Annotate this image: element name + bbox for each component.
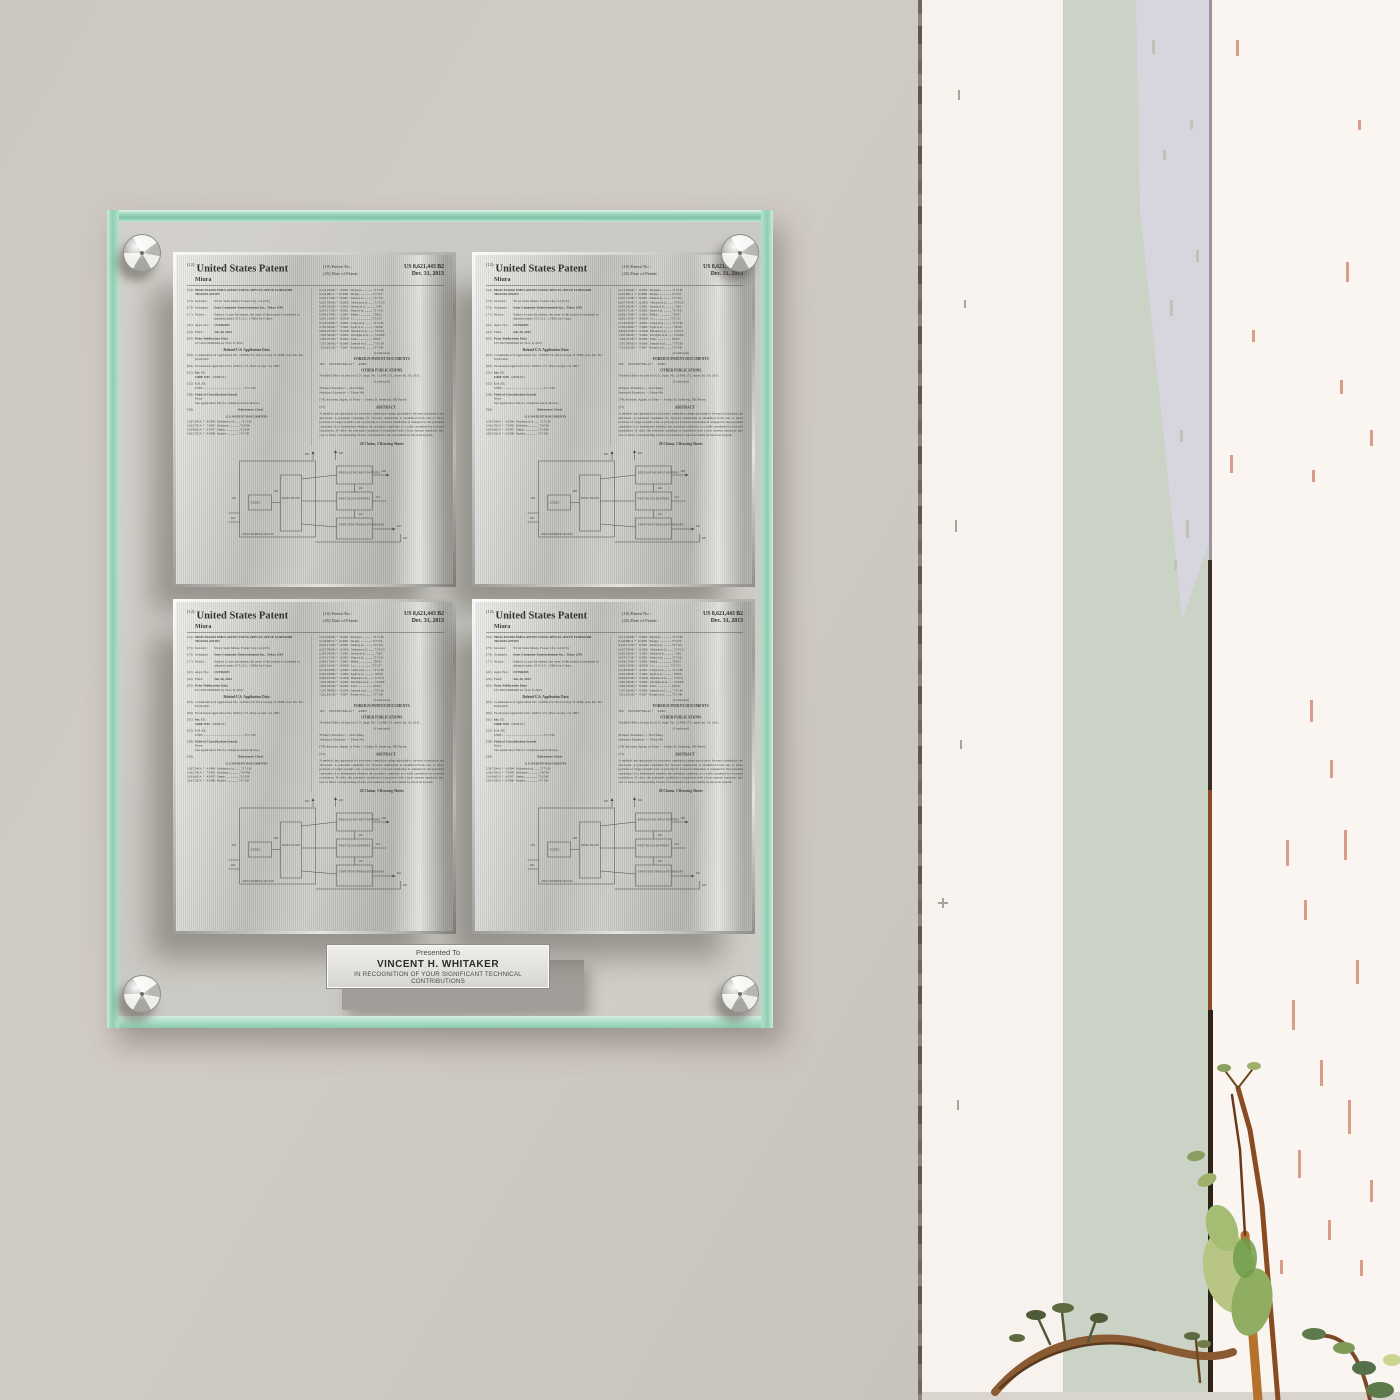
svg-text:106: 106 [274, 489, 279, 493]
filed-date: Jul. 26, 2012 [513, 677, 605, 681]
related-60: Provisional application No. 60/911,171, … [494, 711, 605, 715]
svg-text:BASIC BLOCK: BASIC BLOCK [581, 843, 600, 847]
foreign-ref: WO WO 03/027842 A2 * 4/2003 [320, 710, 445, 714]
svg-text:106: 106 [573, 836, 578, 840]
uspc-line: USPC ...................................… [494, 733, 554, 737]
related-63: Continuation of application No. 12/099,1… [195, 701, 306, 709]
application-number: 13/558,003 [214, 324, 306, 328]
primary-examiner: Primary Examiner — Don Wong [320, 386, 445, 390]
attorney-line: (74) Attorney, Agent, or Firm — Joshua D… [320, 745, 445, 749]
notice: Subject to any disclaimer, the term of t… [214, 313, 306, 321]
assignee: Sony Computer Entertainment Inc., Tokyo … [513, 306, 605, 310]
svg-text:FIRST BLOCK BUFFERS: FIRST BLOCK BUFFERS [638, 496, 670, 500]
svg-text:110: 110 [658, 833, 663, 837]
us-refs-right: 6,115,054 B1 * 9/2000 Maynard ..........… [619, 636, 744, 698]
svg-text:START ROW TRANSLATE MEMORY: START ROW TRANSLATE MEMORY [638, 869, 684, 873]
assignee: Sony Computer Entertainment Inc., Tokyo … [214, 653, 306, 657]
notice: Subject to any disclaimer, the term of t… [214, 660, 306, 668]
assistant-examiner: Assistant Examiner — Theon Wu [619, 738, 744, 742]
patent-figure: 100 102 CODEC BASIC BLOCK 104 106 118 SP… [486, 796, 743, 897]
window-and-plant-art [900, 0, 1400, 1400]
recognition-line: IN RECOGNITION OF YOUR SIGNIFICANT TECHN… [327, 971, 549, 985]
svg-text:102: 102 [339, 451, 344, 455]
svg-text:SPECULATIVE INPUT BUFFERS: SPECULATIVE INPUT BUFFERS [339, 470, 380, 474]
header-rule [486, 632, 743, 633]
patent-number: US 8,621,443 B2 [404, 263, 444, 270]
continued-note: (Continued) [619, 352, 744, 356]
svg-text:116: 116 [397, 524, 402, 528]
svg-text:CODEC: CODEC [251, 500, 261, 504]
inventor-surname: Miura [494, 623, 587, 631]
field-of-search-label: Field of Classification Search [195, 393, 237, 397]
svg-text:116: 116 [696, 524, 701, 528]
patent-title-heading: United States Patent [496, 262, 588, 274]
header-rule [187, 285, 444, 286]
continued-note: (Continued) [320, 699, 445, 703]
svg-text:110: 110 [359, 833, 364, 837]
us-refs-left: 5,307,504 A * 4/1994 Robinson et al. ...… [187, 420, 306, 436]
application-number: 13/558,003 [214, 671, 306, 675]
related-60: Provisional application No. 60/911,171, … [195, 711, 306, 715]
date-of-patent-label: (45) Date of Patent: [622, 617, 658, 624]
related-63: Continuation of application No. 12/099,1… [494, 354, 605, 362]
abstract-heading: ABSTRACT [627, 752, 744, 756]
field-of-search-label: Field of Classification Search [195, 740, 237, 744]
patent-plate-face: (12)United States Patent Miura (10) Pate… [475, 255, 752, 584]
inventor-surname: Miura [494, 276, 587, 284]
date-of-patent-label: (45) Date of Patent: [323, 617, 359, 624]
patent-no-label: (10) Patent No.: [622, 610, 651, 617]
svg-text:MAIN INTERNAL BLOCK: MAIN INTERNAL BLOCK [243, 532, 274, 536]
kind-code: (12) [486, 609, 494, 614]
patent-figure: 100 102 CODEC BASIC BLOCK 104 106 118 SP… [187, 449, 444, 550]
svg-text:100: 100 [604, 452, 609, 456]
application-number: 13/558,003 [513, 324, 605, 328]
svg-text:100: 100 [305, 799, 310, 803]
photo-scene: (12)United States Patent Miura (10) Pate… [0, 0, 1400, 1400]
svg-text:MAIN INTERNAL BLOCK: MAIN INTERNAL BLOCK [542, 532, 573, 536]
ref-line: 7,251,811 B2 * 7/2007 Rosner et al. ....… [320, 693, 445, 697]
claims-line: 20 Claims, 3 Drawing Sheets [619, 442, 744, 446]
ref-line: 5,815,720 A * 9/1998 Buzbee ............… [486, 779, 605, 783]
claims-line: 20 Claims, 3 Drawing Sheets [320, 442, 445, 446]
foreign-ref: WO WO 03/027842 A2 * 4/2003 [619, 363, 744, 367]
other-publications-text: Notified Office Action for U.S. Appl. No… [320, 374, 445, 378]
abstract-text: A method and apparatus for processor emu… [320, 759, 445, 785]
int-cl-code: G06F 9/45 [494, 722, 509, 726]
kind-code: (12) [187, 262, 195, 267]
related-60: Provisional application No. 60/911,171, … [494, 364, 605, 368]
patent-right-column: 6,115,054 B1 * 9/2000 Maynard ..........… [619, 636, 744, 793]
int-cl-code: G06F 9/45 [195, 722, 210, 726]
filed-date: Jul. 26, 2012 [214, 677, 306, 681]
patent-right-column: 6,115,054 B1 * 9/2000 Maynard ..........… [320, 289, 445, 446]
standoff-screw-top-right [721, 234, 759, 272]
patent-title-heading: United States Patent [496, 609, 588, 621]
ref-line: 5,815,720 A * 9/1998 Buzbee ............… [486, 432, 605, 436]
related-63: Continuation of application No. 12/099,1… [494, 701, 605, 709]
us-patent-documents-heading: U.S. PATENT DOCUMENTS [486, 762, 605, 766]
filed-date: Jul. 26, 2012 [214, 330, 306, 334]
us-refs-left: 5,307,504 A * 4/1994 Robinson et al. ...… [486, 420, 605, 436]
claims-line: 20 Claims, 3 Drawing Sheets [320, 789, 445, 793]
svg-text:START ROW TRANSLATE MEMORY: START ROW TRANSLATE MEMORY [638, 522, 684, 526]
glass-edge-left [107, 210, 119, 1028]
svg-text:SPECULATIVE INPUT BUFFERS: SPECULATIVE INPUT BUFFERS [638, 470, 679, 474]
svg-text:116: 116 [696, 871, 701, 875]
other-publications-heading: OTHER PUBLICATIONS [320, 716, 445, 720]
assignee: Sony Computer Entertainment Inc., Tokyo … [214, 306, 306, 310]
standoff-screw-bottom-right [721, 975, 759, 1013]
svg-text:108: 108 [382, 816, 387, 820]
svg-text:106: 106 [573, 489, 578, 493]
primary-examiner: Primary Examiner — Don Wong [619, 733, 744, 737]
presented-to-label: Presented To [327, 948, 549, 957]
patent-plate-face: (12)United States Patent Miura (10) Pate… [176, 255, 453, 584]
svg-text:FIRST BLOCK BUFFERS: FIRST BLOCK BUFFERS [638, 843, 670, 847]
assistant-examiner: Assistant Examiner — Theon Wu [619, 391, 744, 395]
nameplate: Presented To VINCENT H. WHITAKER IN RECO… [326, 944, 550, 989]
svg-text:114: 114 [376, 495, 381, 499]
patent-left-column: (54)PROCESSOR EMULATION USING SPECULATIV… [187, 289, 312, 446]
continued-note-2: (Continued) [320, 727, 445, 731]
uspc-line: USPC ...................................… [494, 386, 554, 390]
assignee: Sony Computer Entertainment Inc., Tokyo … [513, 653, 605, 657]
date-of-patent-label: (45) Date of Patent: [323, 270, 359, 277]
assistant-examiner: Assistant Examiner — Theon Wu [320, 391, 445, 395]
prior-publication-line: US 2012/0296626 A1 Nov. 8, 2012 [494, 688, 542, 692]
int-cl-code: G06F 9/45 [494, 375, 509, 379]
patent-no-label: (10) Patent No.: [323, 610, 352, 617]
inventor-surname: Miura [195, 623, 288, 631]
plant [995, 1062, 1400, 1400]
related-60: Provisional application No. 60/911,171, … [195, 364, 306, 368]
prior-publication-heading: Prior Publication Data [195, 684, 228, 688]
foreign-docs-heading: FOREIGN PATENT DOCUMENTS [619, 704, 744, 708]
svg-text:120: 120 [403, 536, 408, 540]
us-refs-left: 5,307,504 A * 4/1994 Robinson et al. ...… [486, 767, 605, 783]
patent-header: (12)United States Patent Miura (10) Pate… [486, 609, 743, 630]
svg-text:102: 102 [638, 451, 643, 455]
patent-plate: (12)United States Patent Miura (10) Pate… [472, 599, 755, 934]
patent-plate: (12)United States Patent Miura (10) Pate… [173, 252, 456, 587]
svg-text:118: 118 [231, 516, 236, 520]
inventor: Victor Suba Miura, Foster City, CA (US) [513, 646, 605, 650]
uspc-line: USPC ...................................… [195, 733, 255, 737]
invention-title: PROCESSOR EMULATION USING SPECULATIVE FO… [494, 636, 605, 644]
date-of-patent: Dec. 31, 2013 [412, 270, 444, 277]
patent-left-column: (54)PROCESSOR EMULATION USING SPECULATIV… [486, 289, 611, 446]
attorney-line: (74) Attorney, Agent, or Firm — Joshua D… [619, 398, 744, 402]
svg-text:114: 114 [376, 842, 381, 846]
glass-edge-bottom [107, 1016, 773, 1028]
continued-note-2: (Continued) [619, 727, 744, 731]
inventor: Victor Suba Miura, Foster City, CA (US) [513, 299, 605, 303]
svg-text:SPECULATIVE INPUT BUFFERS: SPECULATIVE INPUT BUFFERS [638, 817, 679, 821]
svg-text:112: 112 [658, 512, 663, 516]
field-of-search-label: Field of Classification Search [494, 393, 536, 397]
ref-line: 5,815,720 A * 9/1998 Buzbee ............… [187, 779, 306, 783]
claims-line: 20 Claims, 3 Drawing Sheets [619, 789, 744, 793]
svg-text:116: 116 [397, 871, 402, 875]
other-publications-heading: OTHER PUBLICATIONS [320, 369, 445, 373]
continued-note-2: (Continued) [619, 380, 744, 384]
prior-publication-heading: Prior Publication Data [494, 684, 527, 688]
date-of-patent-label: (45) Date of Patent: [622, 270, 658, 277]
filed-date: Jul. 26, 2012 [513, 330, 605, 334]
svg-text:114: 114 [675, 842, 680, 846]
patent-right-column: 6,115,054 B1 * 9/2000 Maynard ..........… [619, 289, 744, 446]
inventor: Victor Suba Miura, Foster City, CA (US) [214, 299, 306, 303]
us-refs-right: 6,115,054 B1 * 9/2000 Maynard ..........… [619, 289, 744, 351]
svg-text:120: 120 [702, 883, 707, 887]
svg-text:CODEC: CODEC [251, 847, 261, 851]
prior-publication-line: US 2012/0296626 A1 Nov. 8, 2012 [195, 341, 243, 345]
ref-line: 7,251,811 B2 * 7/2007 Rosner et al. ....… [619, 693, 744, 697]
patent-plate-slot-top-left: (12)United States Patent Miura (10) Pate… [173, 252, 456, 587]
related-data-heading: Related U.S. Application Data [187, 695, 306, 699]
related-data-heading: Related U.S. Application Data [187, 348, 306, 352]
invention-title: PROCESSOR EMULATION USING SPECULATIVE FO… [494, 289, 605, 297]
prior-publication-line: US 2012/0296626 A1 Nov. 8, 2012 [195, 688, 243, 692]
patent-left-column: (54)PROCESSOR EMULATION USING SPECULATIV… [187, 636, 312, 793]
svg-text:118: 118 [530, 516, 535, 520]
int-cl-code: G06F 9/45 [195, 375, 210, 379]
svg-text:FIRST BLOCK BUFFERS: FIRST BLOCK BUFFERS [339, 496, 371, 500]
svg-text:118: 118 [231, 863, 236, 867]
svg-text:112: 112 [359, 859, 364, 863]
application-number: 13/558,003 [513, 671, 605, 675]
other-publications-heading: OTHER PUBLICATIONS [619, 369, 744, 373]
svg-text:118: 118 [530, 863, 535, 867]
assistant-examiner: Assistant Examiner — Theon Wu [320, 738, 445, 742]
patent-plate-face: (12)United States Patent Miura (10) Pate… [176, 602, 453, 931]
svg-text:102: 102 [638, 798, 643, 802]
svg-text:MAIN INTERNAL BLOCK: MAIN INTERNAL BLOCK [542, 879, 573, 883]
svg-text:100: 100 [604, 799, 609, 803]
us-refs-right: 6,115,054 B1 * 9/2000 Maynard ..........… [320, 636, 445, 698]
patent-figure: 100 102 CODEC BASIC BLOCK 104 106 118 SP… [486, 449, 743, 550]
references-cited-heading: References Cited [195, 755, 306, 759]
abstract-heading: ABSTRACT [627, 405, 744, 409]
patent-left-column: (54)PROCESSOR EMULATION USING SPECULATIV… [486, 636, 611, 793]
attorney-line: (74) Attorney, Agent, or Firm — Joshua D… [320, 398, 445, 402]
svg-text:CODEC: CODEC [550, 847, 560, 851]
header-rule [187, 632, 444, 633]
foreign-ref: WO WO 03/027842 A2 * 4/2003 [320, 363, 445, 367]
svg-text:110: 110 [658, 486, 663, 490]
us-patent-documents-heading: U.S. PATENT DOCUMENTS [187, 415, 306, 419]
patent-header: (12)United States Patent Miura (10) Pate… [486, 262, 743, 283]
date-of-patent: Dec. 31, 2013 [711, 617, 743, 624]
patent-number: US 8,621,443 B2 [404, 610, 444, 617]
patent-no-label: (10) Patent No.: [323, 263, 352, 270]
ref-line: 5,815,720 A * 9/1998 Buzbee ............… [187, 432, 306, 436]
patent-right-column: 6,115,054 B1 * 9/2000 Maynard ..........… [320, 636, 445, 793]
abstract-heading: ABSTRACT [328, 752, 445, 756]
notice: Subject to any disclaimer, the term of t… [513, 313, 605, 321]
svg-text:114: 114 [675, 495, 680, 499]
svg-text:106: 106 [274, 836, 279, 840]
foreign-docs-heading: FOREIGN PATENT DOCUMENTS [619, 357, 744, 361]
field-of-search-label: Field of Classification Search [494, 740, 536, 744]
foreign-docs-heading: FOREIGN PATENT DOCUMENTS [320, 704, 445, 708]
svg-text:FIRST BLOCK BUFFERS: FIRST BLOCK BUFFERS [339, 843, 371, 847]
patent-header: (12)United States Patent Miura (10) Pate… [187, 262, 444, 283]
header-rule [486, 285, 743, 286]
white-stripe-speckles [938, 90, 966, 1110]
other-publications-text: Notified Office Action for U.S. Appl. No… [619, 374, 744, 378]
svg-text:100: 100 [305, 452, 310, 456]
svg-text:104: 104 [531, 843, 536, 847]
other-publications-text: Notified Office Action for U.S. Appl. No… [320, 721, 445, 725]
ref-line: 7,251,811 B2 * 7/2007 Rosner et al. ....… [619, 346, 744, 350]
patent-number: US 8,621,443 B2 [703, 610, 743, 617]
other-publications-heading: OTHER PUBLICATIONS [619, 716, 744, 720]
patent-title-heading: United States Patent [197, 262, 289, 274]
svg-text:102: 102 [339, 798, 344, 802]
salmon-dashes [1230, 40, 1373, 1276]
svg-text:104: 104 [232, 496, 237, 500]
standoff-screw-top-left [123, 234, 161, 272]
foreign-ref: WO WO 03/027842 A2 * 4/2003 [619, 710, 744, 714]
related-63: Continuation of application No. 12/099,1… [195, 354, 306, 362]
svg-text:104: 104 [531, 496, 536, 500]
references-cited-heading: References Cited [494, 755, 605, 759]
other-publications-text: Notified Office Action for U.S. Appl. No… [619, 721, 744, 725]
glass-edge-top [107, 210, 773, 222]
continued-note: (Continued) [619, 699, 744, 703]
svg-text:MAIN INTERNAL BLOCK: MAIN INTERNAL BLOCK [243, 879, 274, 883]
primary-examiner: Primary Examiner — Don Wong [320, 733, 445, 737]
glass-edge-right [761, 210, 773, 1028]
attorney-line: (74) Attorney, Agent, or Firm — Joshua D… [619, 745, 744, 749]
us-patent-documents-heading: U.S. PATENT DOCUMENTS [187, 762, 306, 766]
svg-text:START ROW TRANSLATE MEMORY: START ROW TRANSLATE MEMORY [339, 869, 385, 873]
svg-text:START ROW TRANSLATE MEMORY: START ROW TRANSLATE MEMORY [339, 522, 385, 526]
inventor: Victor Suba Miura, Foster City, CA (US) [214, 646, 306, 650]
continued-note: (Continued) [320, 352, 445, 356]
patent-title-heading: United States Patent [197, 609, 289, 621]
svg-text:112: 112 [359, 512, 364, 516]
patent-figure: 100 102 CODEC BASIC BLOCK 104 106 118 SP… [187, 796, 444, 897]
us-refs-right: 6,115,054 B1 * 9/2000 Maynard ..........… [320, 289, 445, 351]
patent-plate-slot-bottom-right: (12)United States Patent Miura (10) Pate… [472, 599, 755, 934]
foreign-docs-heading: FOREIGN PATENT DOCUMENTS [320, 357, 445, 361]
svg-text:108: 108 [681, 816, 686, 820]
notice: Subject to any disclaimer, the term of t… [513, 660, 605, 668]
patent-plate: (12)United States Patent Miura (10) Pate… [472, 252, 755, 587]
invention-title: PROCESSOR EMULATION USING SPECULATIVE FO… [195, 289, 306, 297]
ref-line: 7,251,811 B2 * 7/2007 Rosner et al. ....… [320, 346, 445, 350]
svg-text:120: 120 [403, 883, 408, 887]
patent-plate: (12)United States Patent Miura (10) Pate… [173, 599, 456, 934]
svg-text:BASIC BLOCK: BASIC BLOCK [282, 843, 301, 847]
prior-publication-heading: Prior Publication Data [494, 337, 527, 341]
recipient-name: VINCENT H. WHITAKER [327, 959, 549, 970]
svg-text:BASIC BLOCK: BASIC BLOCK [581, 496, 600, 500]
patent-plate-face: (12)United States Patent Miura (10) Pate… [475, 602, 752, 931]
inventor-surname: Miura [195, 276, 288, 284]
abstract-text: A method and apparatus for processor emu… [619, 412, 744, 438]
related-data-heading: Related U.S. Application Data [486, 348, 605, 352]
related-data-heading: Related U.S. Application Data [486, 695, 605, 699]
svg-text:110: 110 [359, 486, 364, 490]
uspc-line: USPC ...................................… [195, 386, 255, 390]
prior-publication-heading: Prior Publication Data [195, 337, 228, 341]
svg-text:CODEC: CODEC [550, 500, 560, 504]
svg-text:120: 120 [702, 536, 707, 540]
abstract-text: A method and apparatus for processor emu… [619, 759, 744, 785]
patent-header: (12)United States Patent Miura (10) Pate… [187, 609, 444, 630]
references-cited-heading: References Cited [195, 408, 306, 412]
kind-code: (12) [187, 609, 195, 614]
svg-text:BASIC BLOCK: BASIC BLOCK [282, 496, 301, 500]
standoff-screw-bottom-left [123, 975, 161, 1013]
svg-text:SPECULATIVE INPUT BUFFERS: SPECULATIVE INPUT BUFFERS [339, 817, 380, 821]
kind-code: (12) [486, 262, 494, 267]
abstract-heading: ABSTRACT [328, 405, 445, 409]
svg-text:112: 112 [658, 859, 663, 863]
date-of-patent: Dec. 31, 2013 [412, 617, 444, 624]
references-cited-heading: References Cited [494, 408, 605, 412]
primary-examiner: Primary Examiner — Don Wong [619, 386, 744, 390]
svg-text:108: 108 [382, 469, 387, 473]
patent-plate-slot-top-right: (12)United States Patent Miura (10) Pate… [472, 252, 755, 587]
abstract-text: A method and apparatus for processor emu… [320, 412, 445, 438]
us-refs-left: 5,307,504 A * 4/1994 Robinson et al. ...… [187, 767, 306, 783]
patent-plate-slot-bottom-left: (12)United States Patent Miura (10) Pate… [173, 599, 456, 934]
us-patent-documents-heading: U.S. PATENT DOCUMENTS [486, 415, 605, 419]
patent-no-label: (10) Patent No.: [622, 263, 651, 270]
svg-text:104: 104 [232, 843, 237, 847]
prior-publication-line: US 2012/0296626 A1 Nov. 8, 2012 [494, 341, 542, 345]
continued-note-2: (Continued) [320, 380, 445, 384]
invention-title: PROCESSOR EMULATION USING SPECULATIVE FO… [195, 636, 306, 644]
svg-text:108: 108 [681, 469, 686, 473]
